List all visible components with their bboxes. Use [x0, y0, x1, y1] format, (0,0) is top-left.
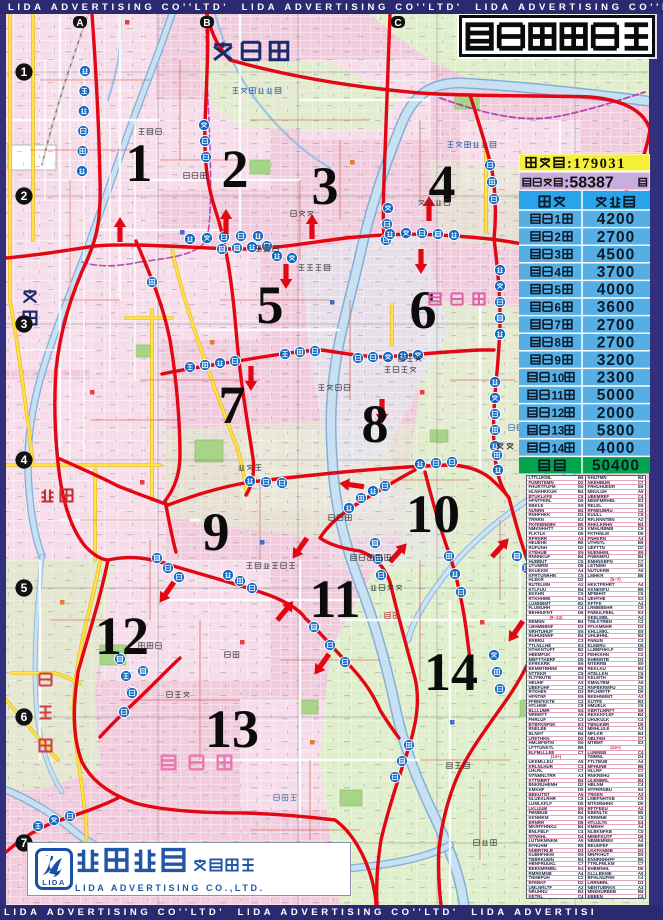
svg-text:B: B	[203, 18, 210, 29]
svg-text:6: 6	[410, 280, 437, 340]
svg-text:12: 12	[95, 606, 149, 666]
svg-text:5000: 5000	[597, 387, 635, 404]
svg-text:13: 13	[552, 426, 565, 438]
svg-text:8: 8	[555, 338, 562, 350]
svg-text:6: 6	[21, 710, 28, 724]
svg-text:2300: 2300	[597, 370, 635, 387]
svg-text:2700: 2700	[597, 334, 635, 351]
svg-text:2: 2	[222, 139, 249, 199]
svg-text:11: 11	[309, 569, 360, 629]
svg-text:14: 14	[552, 443, 565, 455]
svg-text:2000: 2000	[597, 405, 635, 422]
svg-text:5: 5	[257, 275, 284, 335]
svg-text:5800: 5800	[597, 422, 635, 439]
svg-text:3600: 3600	[597, 299, 635, 316]
svg-text:3200: 3200	[597, 352, 635, 369]
svg-text:4000: 4000	[597, 282, 635, 299]
svg-text:7: 7	[555, 320, 561, 332]
svg-text:1: 1	[555, 215, 562, 227]
svg-text:1: 1	[21, 65, 28, 79]
svg-text:14: 14	[424, 642, 478, 702]
svg-text:LIDA: LIDA	[42, 878, 66, 887]
svg-text:2: 2	[21, 189, 28, 203]
svg-text:3700: 3700	[597, 264, 635, 281]
svg-text:6: 6	[555, 303, 561, 315]
svg-text:2700: 2700	[597, 229, 635, 246]
svg-text:4500: 4500	[597, 246, 635, 263]
svg-text:3: 3	[21, 317, 28, 331]
svg-text:5: 5	[21, 581, 28, 595]
svg-text:9: 9	[203, 502, 230, 562]
svg-text:1: 1	[126, 133, 153, 193]
svg-text:7: 7	[219, 375, 246, 435]
svg-text:4: 4	[21, 453, 28, 467]
svg-text:3: 3	[312, 156, 339, 216]
svg-text:4000: 4000	[597, 440, 635, 457]
svg-text::58387: :58387	[564, 175, 614, 192]
svg-text:9: 9	[555, 355, 561, 367]
svg-text:13: 13	[205, 699, 259, 759]
svg-text:11: 11	[552, 391, 565, 403]
svg-text:2: 2	[555, 232, 561, 244]
svg-text:8: 8	[362, 394, 389, 454]
svg-text:5: 5	[555, 285, 562, 297]
svg-text::179031: :179031	[567, 156, 626, 172]
svg-text:10: 10	[552, 373, 565, 385]
svg-text:C: C	[394, 18, 401, 29]
svg-text:A: A	[76, 18, 83, 29]
svg-text:10: 10	[406, 484, 460, 544]
svg-text:2700: 2700	[597, 317, 635, 334]
svg-text:4: 4	[555, 267, 562, 279]
svg-text:50400: 50400	[592, 457, 640, 474]
svg-text:4200: 4200	[597, 211, 635, 228]
svg-text:3: 3	[555, 250, 561, 262]
svg-text:12: 12	[552, 408, 565, 420]
svg-text:LIDA ADVERTISING CO.,LTD.: LIDA ADVERTISING CO.,LTD.	[75, 883, 265, 893]
